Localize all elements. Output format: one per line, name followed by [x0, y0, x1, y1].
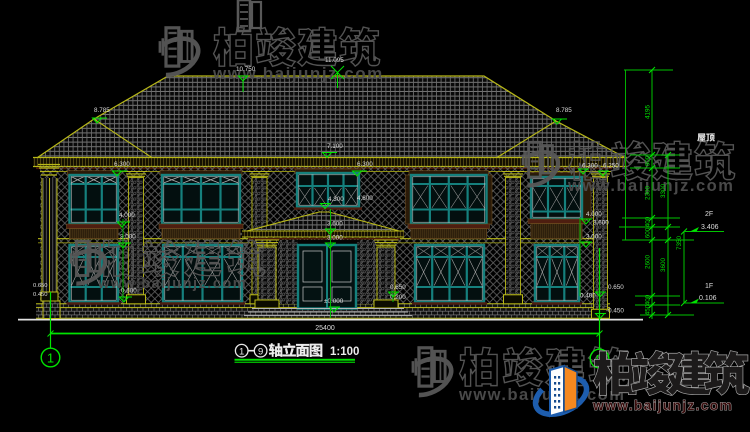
svg-text:0.650: 0.650: [608, 284, 624, 291]
svg-text:6.250: 6.250: [603, 163, 619, 170]
svg-text:www.baijunjz.com: www.baijunjz.com: [97, 276, 247, 292]
svg-text:3.000: 3.000: [586, 234, 602, 241]
svg-text:400: 400: [645, 294, 652, 305]
svg-text:3600: 3600: [660, 258, 667, 273]
svg-text:600: 600: [645, 227, 652, 238]
svg-text:4195: 4195: [645, 105, 652, 120]
svg-text:2600: 2600: [645, 255, 652, 270]
svg-text:±0.000: ±0.000: [324, 298, 344, 305]
svg-text:7.100: 7.100: [327, 143, 343, 150]
svg-text:7350: 7350: [676, 236, 683, 251]
svg-text:450: 450: [645, 304, 652, 315]
svg-text:www.baijunjz.com: www.baijunjz.com: [592, 397, 733, 413]
svg-text:400: 400: [645, 216, 652, 227]
svg-text:3.600: 3.600: [593, 220, 609, 227]
svg-text:1:100: 1:100: [330, 346, 359, 358]
svg-text:-0.450: -0.450: [606, 308, 624, 315]
svg-text:0.650: 0.650: [390, 284, 406, 291]
svg-text:3.000: 3.000: [327, 235, 343, 242]
svg-text:4.000: 4.000: [119, 212, 135, 219]
svg-text:1: 1: [47, 351, 54, 366]
svg-text:3.600: 3.600: [327, 221, 343, 228]
svg-text:11.095: 11.095: [325, 57, 344, 64]
svg-text:4.600: 4.600: [357, 195, 373, 202]
svg-text:3.406: 3.406: [701, 224, 719, 231]
svg-text:4.000: 4.000: [586, 211, 602, 218]
svg-text:8.785: 8.785: [556, 107, 572, 114]
svg-text:6.300: 6.300: [582, 163, 598, 170]
svg-text:4.300: 4.300: [328, 196, 344, 203]
svg-text:6.300: 6.300: [357, 161, 373, 168]
svg-text:0.450: 0.450: [33, 292, 48, 298]
svg-text:2F: 2F: [705, 211, 713, 218]
svg-text:25400: 25400: [315, 325, 335, 332]
svg-text:3300: 3300: [660, 184, 667, 199]
svg-text:1F: 1F: [705, 283, 713, 290]
svg-text:600: 600: [645, 155, 652, 166]
svg-text:0.400: 0.400: [580, 293, 596, 300]
svg-text:1: 1: [239, 346, 244, 357]
svg-text:0.106: 0.106: [699, 295, 717, 302]
svg-text:8.785: 8.785: [94, 107, 110, 114]
svg-text:0.200: 0.200: [390, 294, 406, 301]
svg-text:3.000: 3.000: [120, 234, 136, 241]
svg-text:10.750: 10.750: [236, 66, 256, 73]
svg-text:9: 9: [258, 346, 263, 357]
svg-text:6.300: 6.300: [114, 161, 130, 168]
svg-text:0.650: 0.650: [33, 283, 48, 289]
svg-text:2300: 2300: [645, 186, 652, 201]
